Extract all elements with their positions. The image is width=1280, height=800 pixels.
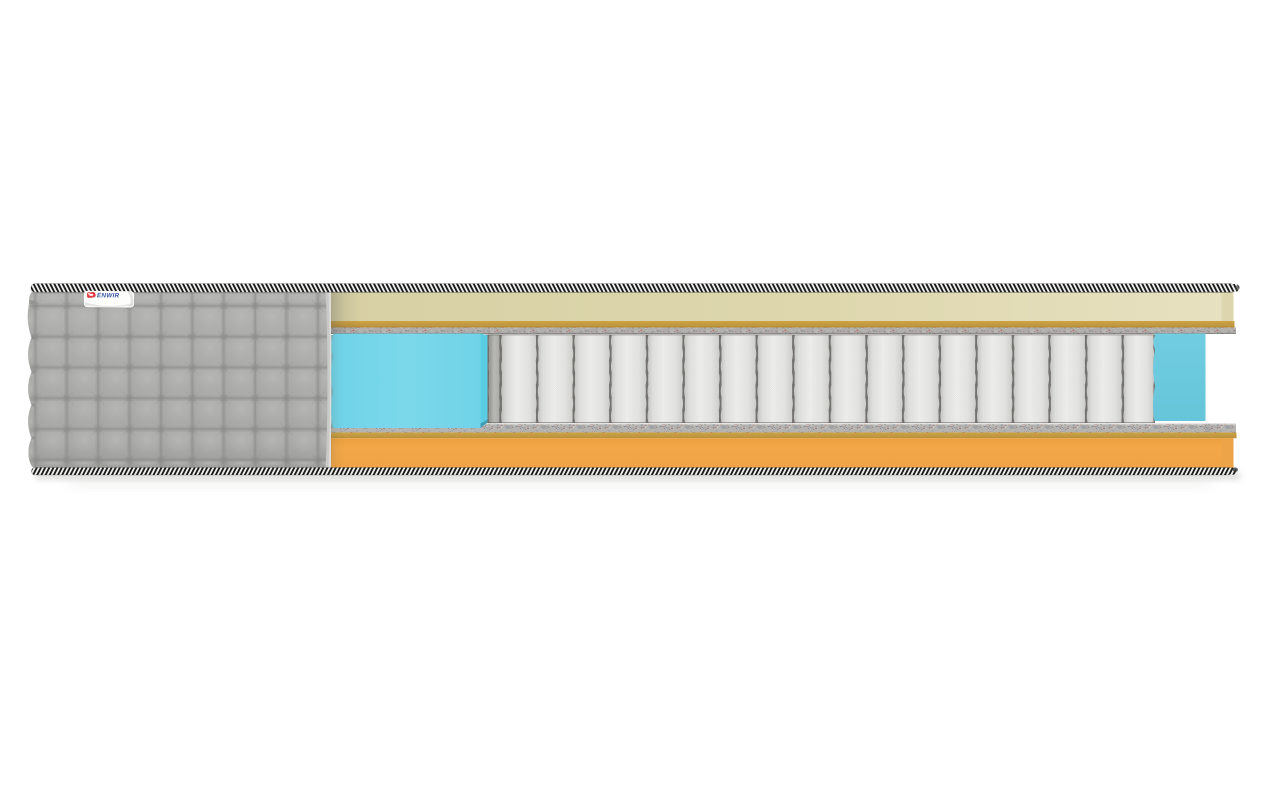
svg-text:ENWIR: ENWIR	[97, 292, 120, 299]
